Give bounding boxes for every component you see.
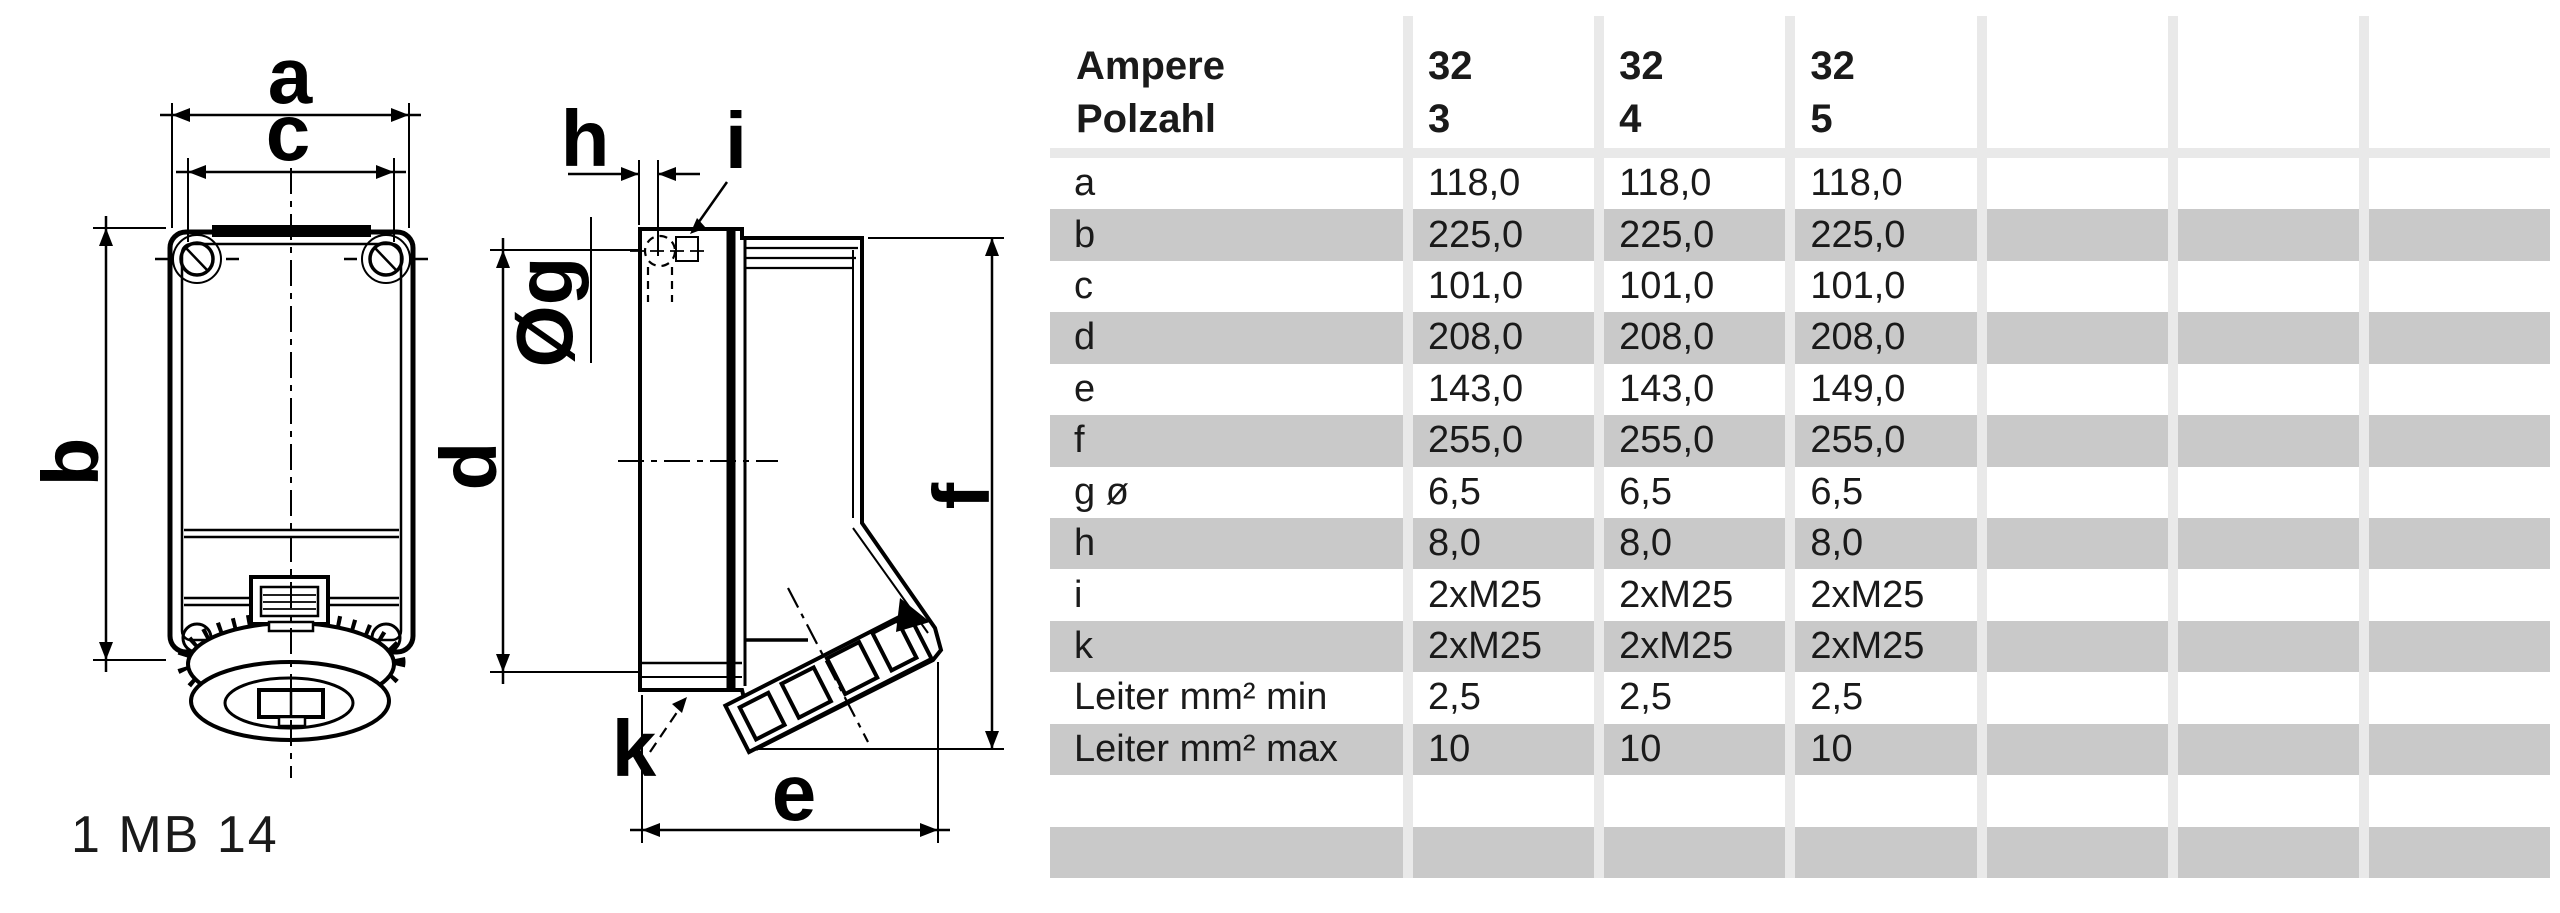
- row-value: [1987, 672, 2168, 723]
- row-value: [2178, 158, 2359, 209]
- row-value: 101,0: [1604, 261, 1785, 312]
- row-value: [2369, 775, 2550, 826]
- row-value: [2178, 569, 2359, 620]
- header-polzahl-label: Polzahl: [1076, 93, 1403, 146]
- row-value: [1604, 827, 1785, 878]
- table-row: a118,0118,0118,0: [1050, 158, 2550, 209]
- row-value: 255,0: [1604, 415, 1785, 466]
- dim-label-c: c: [266, 88, 311, 177]
- row-value: [2369, 621, 2550, 672]
- table-row: g ø6,56,56,5: [1050, 467, 2550, 518]
- row-value: [1987, 158, 2168, 209]
- row-value: 225,0: [1413, 209, 1594, 260]
- row-value: [2178, 261, 2359, 312]
- row-label: g ø: [1050, 467, 1403, 518]
- row-value: [2178, 672, 2359, 723]
- row-value: 143,0: [1604, 364, 1785, 415]
- row-value: [1987, 775, 2168, 826]
- row-value: 255,0: [1795, 415, 1976, 466]
- header-polzahl-value: 4: [1619, 93, 1785, 146]
- row-value: [1987, 209, 2168, 260]
- row-value: 2xM25: [1795, 621, 1976, 672]
- row-value: 8,0: [1604, 518, 1785, 569]
- row-value: 225,0: [1604, 209, 1785, 260]
- table-row: i2xM252xM252xM25: [1050, 569, 2550, 620]
- header-ampere-value: 32: [1428, 40, 1594, 93]
- row-value: [1987, 569, 2168, 620]
- row-value: 8,0: [1413, 518, 1594, 569]
- row-value: [1413, 775, 1594, 826]
- row-label: d: [1050, 312, 1403, 363]
- row-value: [2369, 827, 2550, 878]
- lid-grip: [251, 577, 328, 631]
- row-value: [1413, 827, 1594, 878]
- row-value: 118,0: [1604, 158, 1785, 209]
- row-label: a: [1050, 158, 1403, 209]
- row-value: [1987, 827, 2168, 878]
- row-value: [2369, 209, 2550, 260]
- row-value: 6,5: [1413, 467, 1594, 518]
- table-row: h8,08,08,0: [1050, 518, 2550, 569]
- row-value: 118,0: [1795, 158, 1976, 209]
- row-label: b: [1050, 209, 1403, 260]
- row-value: 10: [1604, 724, 1785, 775]
- row-value: [2369, 724, 2550, 775]
- row-value: [2178, 467, 2359, 518]
- dim-label-k: k: [612, 704, 657, 793]
- row-value: 2,5: [1604, 672, 1785, 723]
- row-label: h: [1050, 518, 1403, 569]
- table-row: Leiter mm² min2,52,52,5: [1050, 672, 2550, 723]
- row-value: 2xM25: [1413, 621, 1594, 672]
- row-value: [2178, 775, 2359, 826]
- row-value: [2178, 827, 2359, 878]
- row-value: 208,0: [1413, 312, 1594, 363]
- technical-drawing: a c b 1 MB 14: [0, 0, 1050, 913]
- row-value: [2369, 569, 2550, 620]
- row-value: 2xM25: [1413, 569, 1594, 620]
- front-view: a c b 1 MB 14: [26, 31, 428, 864]
- table-body: a118,0118,0118,0b225,0225,0225,0c101,010…: [1050, 158, 2550, 878]
- table-header: Ampere Polzahl 323324325: [1050, 16, 2550, 148]
- row-value: 2,5: [1413, 672, 1594, 723]
- row-value: [1987, 415, 2168, 466]
- row-value: 8,0: [1795, 518, 1976, 569]
- row-value: [1795, 827, 1976, 878]
- row-value: [2178, 724, 2359, 775]
- table-row: e143,0143,0149,0: [1050, 364, 2550, 415]
- header-polzahl-value: 5: [1810, 93, 1976, 146]
- row-label: Leiter mm² min: [1050, 672, 1403, 723]
- row-value: [2178, 518, 2359, 569]
- header-column-6: [2369, 16, 2550, 148]
- header-ampere-label: Ampere: [1076, 40, 1403, 93]
- row-value: [2178, 621, 2359, 672]
- row-value: 118,0: [1413, 158, 1594, 209]
- row-value: 6,5: [1604, 467, 1785, 518]
- header-separator-strip: [1050, 148, 2550, 158]
- model-number: 1 MB 14: [71, 806, 279, 864]
- row-value: 2,5: [1795, 672, 1976, 723]
- row-value: [1795, 775, 1976, 826]
- row-value: [1987, 312, 2168, 363]
- table-row: Leiter mm² max101010: [1050, 724, 2550, 775]
- row-value: 6,5: [1795, 467, 1976, 518]
- table-row: c101,0101,0101,0: [1050, 261, 2550, 312]
- table-row: [1050, 775, 2550, 826]
- row-value: [2178, 364, 2359, 415]
- row-value: 10: [1795, 724, 1976, 775]
- side-view: h i Øg d f k e: [424, 94, 1006, 843]
- dim-label-g: Øg: [500, 256, 589, 367]
- row-value: [2369, 518, 2550, 569]
- leader-i: [690, 182, 727, 234]
- row-value: 101,0: [1795, 261, 1976, 312]
- row-value: 225,0: [1795, 209, 1976, 260]
- row-label: k: [1050, 621, 1403, 672]
- dim-label-i: i: [725, 96, 747, 185]
- row-value: 143,0: [1413, 364, 1594, 415]
- dimension-table: Ampere Polzahl 323324325 a118,0118,0118,…: [1050, 16, 2550, 878]
- row-value: [1987, 467, 2168, 518]
- dim-label-d: d: [424, 442, 513, 491]
- header-column-2: 324: [1604, 16, 1785, 148]
- row-label: Leiter mm² max: [1050, 724, 1403, 775]
- header-column-5: [2178, 16, 2359, 148]
- dim-label-e: e: [772, 748, 817, 837]
- row-value: [1987, 621, 2168, 672]
- table-row: d208,0208,0208,0: [1050, 312, 2550, 363]
- datasheet-page: a c b 1 MB 14: [0, 0, 2560, 913]
- row-label: [1050, 827, 1403, 878]
- header-column-4: [1987, 16, 2168, 148]
- header-column-3: 325: [1795, 16, 1976, 148]
- row-value: [2369, 158, 2550, 209]
- table-row: f255,0255,0255,0: [1050, 415, 2550, 466]
- header-column-1: 323: [1413, 16, 1594, 148]
- row-label: [1050, 775, 1403, 826]
- row-value: [2369, 672, 2550, 723]
- row-label: i: [1050, 569, 1403, 620]
- row-value: [2178, 312, 2359, 363]
- row-value: 2xM25: [1604, 569, 1785, 620]
- row-value: 2xM25: [1795, 569, 1976, 620]
- row-value: 208,0: [1604, 312, 1785, 363]
- row-value: [2369, 467, 2550, 518]
- row-value: [1987, 518, 2168, 569]
- row-value: 255,0: [1413, 415, 1594, 466]
- row-label: e: [1050, 364, 1403, 415]
- row-value: [2369, 312, 2550, 363]
- header-ampere-value: 32: [1619, 40, 1785, 93]
- row-value: 10: [1413, 724, 1594, 775]
- table-row: k2xM252xM252xM25: [1050, 621, 2550, 672]
- row-value: [2369, 415, 2550, 466]
- dim-label-b: b: [26, 438, 115, 487]
- row-value: [1604, 775, 1785, 826]
- row-value: 101,0: [1413, 261, 1594, 312]
- row-label: f: [1050, 415, 1403, 466]
- row-value: [1987, 724, 2168, 775]
- table-row: [1050, 827, 2550, 878]
- header-label-cell: Ampere Polzahl: [1050, 16, 1403, 148]
- header-ampere-value: 32: [1810, 40, 1976, 93]
- row-value: 2xM25: [1604, 621, 1785, 672]
- row-value: [2178, 209, 2359, 260]
- table-row: b225,0225,0225,0: [1050, 209, 2550, 260]
- header-polzahl-value: 3: [1428, 93, 1594, 146]
- row-value: [2178, 415, 2359, 466]
- row-value: [2369, 261, 2550, 312]
- row-value: 149,0: [1795, 364, 1976, 415]
- row-value: [1987, 364, 2168, 415]
- row-label: c: [1050, 261, 1403, 312]
- row-value: 208,0: [1795, 312, 1976, 363]
- dim-label-f: f: [917, 482, 1006, 509]
- row-value: [2369, 364, 2550, 415]
- row-value: [1987, 261, 2168, 312]
- dim-label-h: h: [561, 94, 610, 183]
